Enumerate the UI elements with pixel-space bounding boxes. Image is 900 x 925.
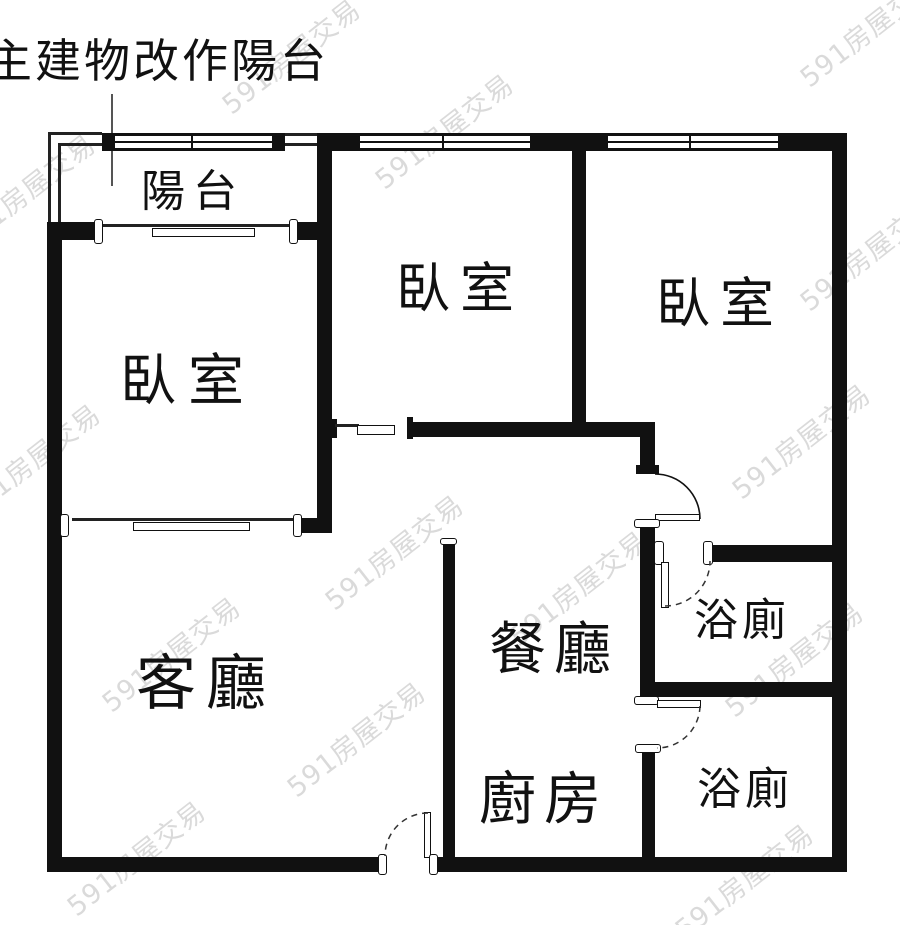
annotation-text: 主建物改作陽台 <box>0 36 329 87</box>
door-flange <box>635 744 661 753</box>
window-midline <box>102 141 285 143</box>
wall-dining-bath <box>640 528 655 697</box>
balcony-outline-outer-h <box>48 132 102 135</box>
window-balcony-end-east <box>272 133 285 151</box>
wall-bottom-right <box>431 857 847 872</box>
room-label-balcony: 陽台 <box>141 170 245 214</box>
room-label-bedroom-right: 臥室 <box>656 277 784 331</box>
door-arc-bedroom-right <box>655 474 700 519</box>
door-flange <box>703 541 713 565</box>
window-midline <box>360 141 530 143</box>
door-leaf-bedroom-right <box>655 514 700 521</box>
door-flange <box>634 696 659 705</box>
door-flange <box>429 854 438 875</box>
window-flange <box>60 514 69 537</box>
wall-bathroom-upper-north <box>713 545 832 562</box>
window-balcony-end-west <box>102 133 115 151</box>
window-sill-balcony-bedroom <box>103 224 292 227</box>
wall-endcap <box>440 538 457 545</box>
wall-bathroom-divider <box>655 682 847 697</box>
watermark: 591房屋交易 <box>365 63 520 196</box>
window-sill-bedroom-left <box>72 518 295 521</box>
window-flange <box>94 219 103 244</box>
window-balcony-divider <box>191 133 193 151</box>
door-leaf-bathroom-upper <box>661 562 669 608</box>
door-arc-entry <box>385 813 428 856</box>
balcony-outline-outer-v <box>48 132 51 226</box>
door-leaf-bathroom-lower <box>657 700 701 708</box>
window-panel-bedroom-left <box>133 522 250 531</box>
balcony-outline-east-h2 <box>285 143 317 146</box>
watermark: 591房屋交易 <box>790 0 900 95</box>
door-flange <box>634 519 660 528</box>
sliding-door-track <box>335 424 359 427</box>
room-label-living-room: 客廳 <box>136 654 276 714</box>
wall-bedroom-left-bottom-east <box>302 518 332 533</box>
floor-plan: 591房屋交易 591房屋交易 591房屋交易 591房屋交易 591房屋交易 … <box>0 0 900 925</box>
door-flange <box>378 854 387 875</box>
wall-kitchen-bath <box>642 753 655 857</box>
wall-bedroom-left-east <box>317 133 332 533</box>
wall-right <box>832 133 847 872</box>
wall-dining-north-endcap <box>407 417 413 439</box>
wall-balcony-bedroom-west <box>47 222 97 240</box>
wall-bedroom-divider <box>572 133 586 435</box>
balcony-outline-inner-h <box>58 143 102 146</box>
door-arc-bathroom-lower <box>657 706 700 748</box>
wall-left <box>47 225 62 872</box>
window-bedroom-middle-divider <box>442 133 444 151</box>
balcony-outline-east-h1 <box>285 133 317 136</box>
room-label-bedroom-middle: 臥室 <box>396 262 524 316</box>
window-panel-balcony-bedroom <box>152 228 255 237</box>
watermark: 591房屋交易 <box>722 373 877 506</box>
window-bedroom-middle <box>360 133 530 151</box>
wall-top-middle <box>530 133 608 151</box>
wall-living-kitchen <box>443 543 455 857</box>
sliding-door-panel <box>357 425 395 435</box>
door-leaf-entry <box>424 812 431 858</box>
room-label-bedroom-left: 臥室 <box>120 354 256 410</box>
room-label-bathroom-lower: 浴廁 <box>697 768 793 812</box>
wall-door-cap <box>636 465 659 474</box>
window-midline <box>608 141 778 143</box>
wall-bottom-left <box>47 857 385 872</box>
room-label-bathroom-upper: 浴廁 <box>694 599 790 643</box>
room-label-kitchen: 廚房 <box>479 772 609 829</box>
wall-dining-north <box>413 422 653 437</box>
window-bedroom-right <box>608 133 778 151</box>
room-label-dining-room: 餐廳 <box>489 622 619 679</box>
window-balcony <box>102 133 285 151</box>
window-flange <box>289 219 298 244</box>
window-flange <box>293 514 302 537</box>
balcony-outline-inner-v <box>58 146 61 225</box>
sliding-door-flange <box>329 419 337 438</box>
watermark: 591房屋交易 <box>277 671 432 804</box>
window-bedroom-right-divider <box>689 133 691 151</box>
